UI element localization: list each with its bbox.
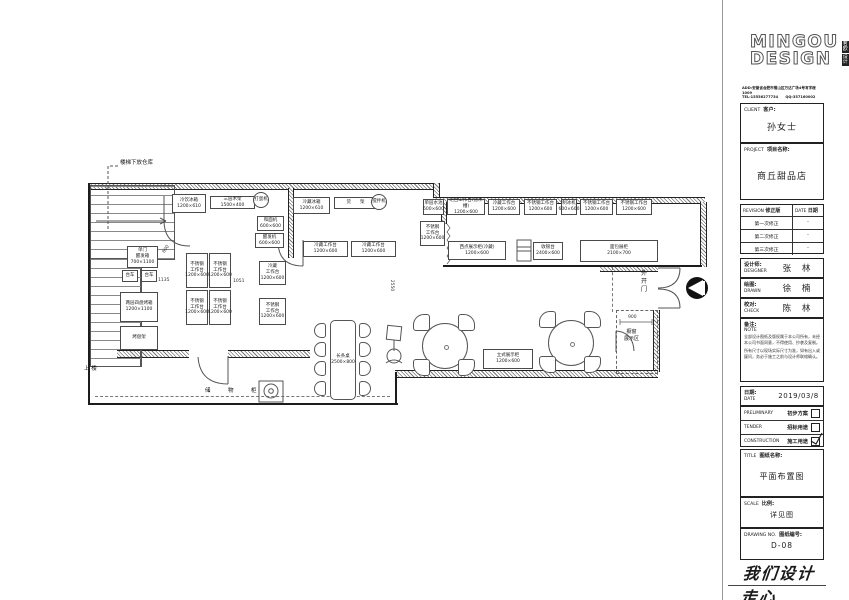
equipment-label: 冷藏 工作台 1200×600 <box>259 261 286 285</box>
checkbox-construction <box>811 437 820 446</box>
client-box: CLIENT 客户: 孙女士 <box>740 103 824 143</box>
client-label-en: CLIENT <box>744 108 760 113</box>
long-table: 长条桌 2500×800 <box>330 320 356 400</box>
project-label-en: PROJECT <box>744 148 764 153</box>
chair <box>359 342 371 357</box>
check-label: 校对:CHECK <box>741 302 774 314</box>
chair <box>359 361 371 376</box>
equipment-label: 立式展示柜 1200×600 <box>483 349 533 369</box>
check-value: 陈 林 <box>774 302 823 314</box>
chair <box>413 314 430 331</box>
scale-box: SCALE 比例: 详见图 <box>740 497 824 528</box>
revision-row-name: 第三次修正 <box>741 242 793 255</box>
label-up-stairs: 上 楼 <box>84 366 97 373</box>
chair <box>314 381 326 396</box>
chair <box>314 342 326 357</box>
date-value: 2019/03/8 <box>774 392 823 400</box>
scale-value: 详见图 <box>741 510 823 520</box>
equipment-label: 不锈钢 工作台 1200×600 <box>186 253 208 288</box>
phases-box: PRELIMINARY 初步方案 TENDER 招标用途 CONSTRUCTIO… <box>740 406 824 447</box>
dim-2550: 2550 <box>389 280 394 291</box>
date-label: 日期:DATE <box>741 390 774 402</box>
equipment-label: 不锈钢工作台 1200×600 <box>580 199 613 215</box>
dashed-line <box>612 267 613 312</box>
label-storage-under-stairs: 楼梯下放仓库 <box>120 160 153 167</box>
sheet-title-label: TITLE 图纸名称: <box>741 450 823 459</box>
sheet-fold-line <box>722 0 723 600</box>
project-label-cn: 项目名称: <box>767 146 790 153</box>
equipment-label: 烤盘架 <box>120 326 158 350</box>
equipment-label: 台车 <box>122 270 138 282</box>
revision-row-name: 第二次修正 <box>741 229 793 242</box>
wall <box>88 403 398 405</box>
counter-line <box>443 265 702 267</box>
project-box: PROJECT 项目名称: 商丘甜品店 <box>740 143 824 200</box>
logo-cn-top: 茗欧 <box>842 41 849 53</box>
chair <box>359 323 371 338</box>
chair <box>314 323 326 338</box>
drawing-sheet: 长条桌 2500×800 楼梯下放仓库 上 楼 储 物 柜 外 开 门 橱窗 展… <box>0 0 849 600</box>
address-line2: TEL:15556277734 QQ:357160002 <box>742 95 824 100</box>
drawing-no-value: D-08 <box>741 541 823 550</box>
phase-tender: TENDER 招标用途 <box>741 420 823 434</box>
drawn-label: 绘图:DRAWN <box>741 282 774 294</box>
client-value: 孙女士 <box>741 120 823 133</box>
equipment-label: 冷藏工作台 1200×600 <box>488 199 520 215</box>
equipment-label: 和面机 600×600 <box>257 216 284 231</box>
note-label: 备注: NOTE <box>741 319 823 333</box>
phase-construction: CONSTRUCTION 施工用途 <box>741 434 823 448</box>
equipment-label: 两层四盘烤箱 1200×1100 <box>120 292 158 322</box>
revision-row-date: - <box>793 229 823 242</box>
dim-900: 900 <box>628 315 637 320</box>
check-box: 校对:CHECK 陈 林 <box>740 298 824 318</box>
logo-line2: DESIGN <box>750 51 839 68</box>
label-storage-cabinet: 储 物 柜 <box>205 388 263 395</box>
revision-box: REVISION 修正版 DATE 日期 第一次修正 - 第二次修正 - 第三次… <box>740 204 824 254</box>
revision-header: REVISION 修正版 <box>741 205 793 216</box>
note-box: 备注: NOTE 全部设计图纸及版权属于本公司所有，未经本公司书面同意，不得使用… <box>740 318 824 382</box>
equipment-label: 制冰机 600×600 <box>561 199 577 215</box>
equipment-label: 西点展示柜(冷藏) 1200×600 <box>448 241 506 260</box>
equipment-label: 不锈钢 工作台 1200×600 <box>420 221 445 246</box>
equipment-label: 收银台 2400×600 <box>533 242 563 260</box>
project-head: PROJECT 项目名称: <box>741 144 823 153</box>
phase-preliminary: PRELIMINARY 初步方案 <box>741 407 823 420</box>
label-outward-door: 外 开 门 <box>640 270 648 294</box>
date-box: 日期:DATE 2019/03/8 <box>740 386 824 406</box>
equipment-label: 冷藏冰箱 1200×610 <box>293 197 330 214</box>
slogan: 我们设计走心 <box>739 560 828 600</box>
drawn-box: 绘图:DRAWN 徐 楠 <box>740 278 824 298</box>
note-paragraph-2: 所有尺寸以现场实际尺寸为准，如有出入或疑问，务必于施工之前与设计师联络确认。 <box>741 347 823 361</box>
equipment-label: 冷藏工作台 1200×600 <box>303 241 348 257</box>
client-head: CLIENT 客户: <box>741 104 823 113</box>
equipment-label: 搅拌机 <box>371 194 387 210</box>
checkbox-preliminary <box>811 409 820 418</box>
equipment-label: 不锈钢工作台 1200×600 <box>616 199 652 215</box>
revision-row-date: - <box>793 242 823 255</box>
note-paragraph-1: 全部设计图纸及版权属于本公司所有，未经本公司书面同意，不得使用、抄袭及复制。 <box>741 333 823 347</box>
equipment-label: 不锈钢 工作台 1200×600 <box>209 290 231 325</box>
checkbox-tender <box>811 423 820 432</box>
equipment-label: 不锈钢工作台 1200×600 <box>524 199 557 215</box>
chair <box>539 311 556 328</box>
scale-label: SCALE 比例: <box>741 498 823 507</box>
designer-box: 设计师:DESIGNER 张 林 <box>740 258 824 278</box>
equipment-label: 三层木架 1500×400 <box>210 196 255 209</box>
logo-cn-bottom: 设计 <box>842 54 849 66</box>
chair <box>314 361 326 376</box>
address-line1: ADD:安徽省合肥市蜀山区万达广场4号写字楼1009 <box>742 86 824 95</box>
address: ADD:安徽省合肥市蜀山区万达广场4号写字楼1009 TEL:155562777… <box>742 86 824 100</box>
floor-plan: 长条桌 2500×800 楼梯下放仓库 上 楼 储 物 柜 外 开 门 橱窗 展… <box>0 0 725 600</box>
dim-1135: 1135 <box>158 278 169 283</box>
equipment-label: 不锈钢 工作台 1200×600 <box>209 253 231 288</box>
revision-row-date: - <box>793 216 823 229</box>
equipment-label: 打蛋机 <box>253 192 269 208</box>
equipment-label: 不锈钢 工作台 1200×600 <box>186 290 208 325</box>
equipment-label: 不锈钢 工作台 1200×600 <box>259 298 286 325</box>
project-value: 商丘甜品店 <box>741 169 823 182</box>
designer-value: 张 林 <box>774 262 823 274</box>
sheet-title-box: TITLE 图纸名称: 平面布置图 <box>740 449 824 497</box>
equipment-label: 冷藏工作台 1200×600 <box>351 241 396 257</box>
chair <box>458 314 475 331</box>
label-window-display: 橱窗 展示区 <box>624 329 639 343</box>
equipment-label: 面包展柜 2100×700 <box>580 240 658 262</box>
drawing-no-label: DRAWING NO. 图纸编号: <box>741 529 823 538</box>
revision-row-name: 第一次修正 <box>741 216 793 229</box>
designer-label: 设计师:DESIGNER <box>741 262 774 274</box>
bottom-rule <box>728 585 826 586</box>
equipment-label: 醒发机 600×600 <box>255 233 284 248</box>
equipment-label: 台车 <box>141 270 157 282</box>
drawing-no-box: DRAWING NO. 图纸编号: D-08 <box>740 528 824 560</box>
equipment-label: 单层水池 600×600 <box>423 199 444 215</box>
chair <box>584 311 601 328</box>
equipment-label: 单门 醒发箱 700×1100 <box>127 246 158 268</box>
pen-check-icon <box>809 432 823 446</box>
drawn-value: 徐 楠 <box>774 282 823 294</box>
chair <box>359 381 371 396</box>
wall <box>395 372 397 405</box>
title-block: MINGOU DESIGN 茗欧 设计 ADD:安徽省合肥市蜀山区万达广场4号写… <box>740 0 826 600</box>
dim-1051: 1051 <box>233 279 244 284</box>
revision-date-header: DATE 日期 <box>793 205 823 216</box>
client-label-cn: 客户: <box>763 106 775 113</box>
equipment-label: 冷饮冰箱 1200×610 <box>172 194 206 213</box>
equipment-label: 吧台工作台(含水槽) 1200×600 <box>447 199 485 215</box>
wall <box>228 350 310 358</box>
logo: MINGOU DESIGN 茗欧 设计 <box>750 34 849 68</box>
sheet-title-value: 平面布置图 <box>741 471 823 482</box>
wall <box>700 202 707 267</box>
entry-symbol <box>686 277 708 299</box>
